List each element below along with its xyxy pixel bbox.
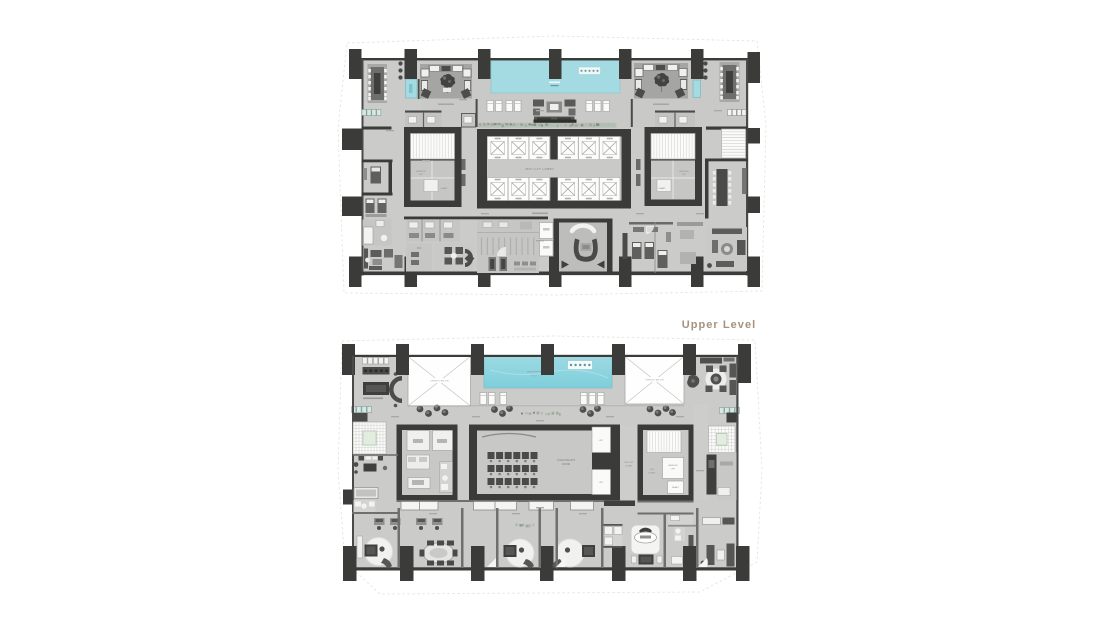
svg-text:SERVICE: SERVICE bbox=[668, 465, 678, 467]
svg-text:LIFT: LIFT bbox=[671, 469, 676, 471]
svg-text:LIFT: LIFT bbox=[599, 440, 604, 442]
svg-text:LIFT: LIFT bbox=[682, 174, 687, 176]
svg-text:SHAFT: SHAFT bbox=[440, 187, 448, 190]
svg-text:SPA: SPA bbox=[417, 247, 422, 250]
svg-text:Upper Level: Upper Level bbox=[682, 319, 757, 331]
svg-text:SHAFT: SHAFT bbox=[672, 486, 680, 489]
svg-text:OPEN TO BELOW: OPEN TO BELOW bbox=[430, 381, 449, 383]
svg-text:OPEN TO BELOW: OPEN TO BELOW bbox=[645, 380, 664, 382]
svg-text:LIFT: LIFT bbox=[650, 469, 655, 471]
svg-text:POOL: POOL bbox=[531, 376, 538, 378]
svg-text:SERVICE: SERVICE bbox=[416, 171, 426, 173]
svg-text:LIFT: LIFT bbox=[419, 174, 424, 176]
svg-text:LOBBY: LOBBY bbox=[625, 466, 633, 468]
svg-text:SHAFT: SHAFT bbox=[658, 187, 666, 190]
svg-text:LIFT: LIFT bbox=[599, 482, 604, 484]
svg-text:CHAUFFEUR'S: CHAUFFEUR'S bbox=[557, 458, 575, 462]
svg-text:MID LIFT LOBBY: MID LIFT LOBBY bbox=[526, 167, 555, 171]
svg-text:SERVICE: SERVICE bbox=[679, 171, 689, 173]
svg-text:ROOM: ROOM bbox=[562, 462, 570, 466]
svg-text:MID LIFT: MID LIFT bbox=[624, 462, 634, 464]
svg-text:LOBBY: LOBBY bbox=[648, 473, 656, 475]
